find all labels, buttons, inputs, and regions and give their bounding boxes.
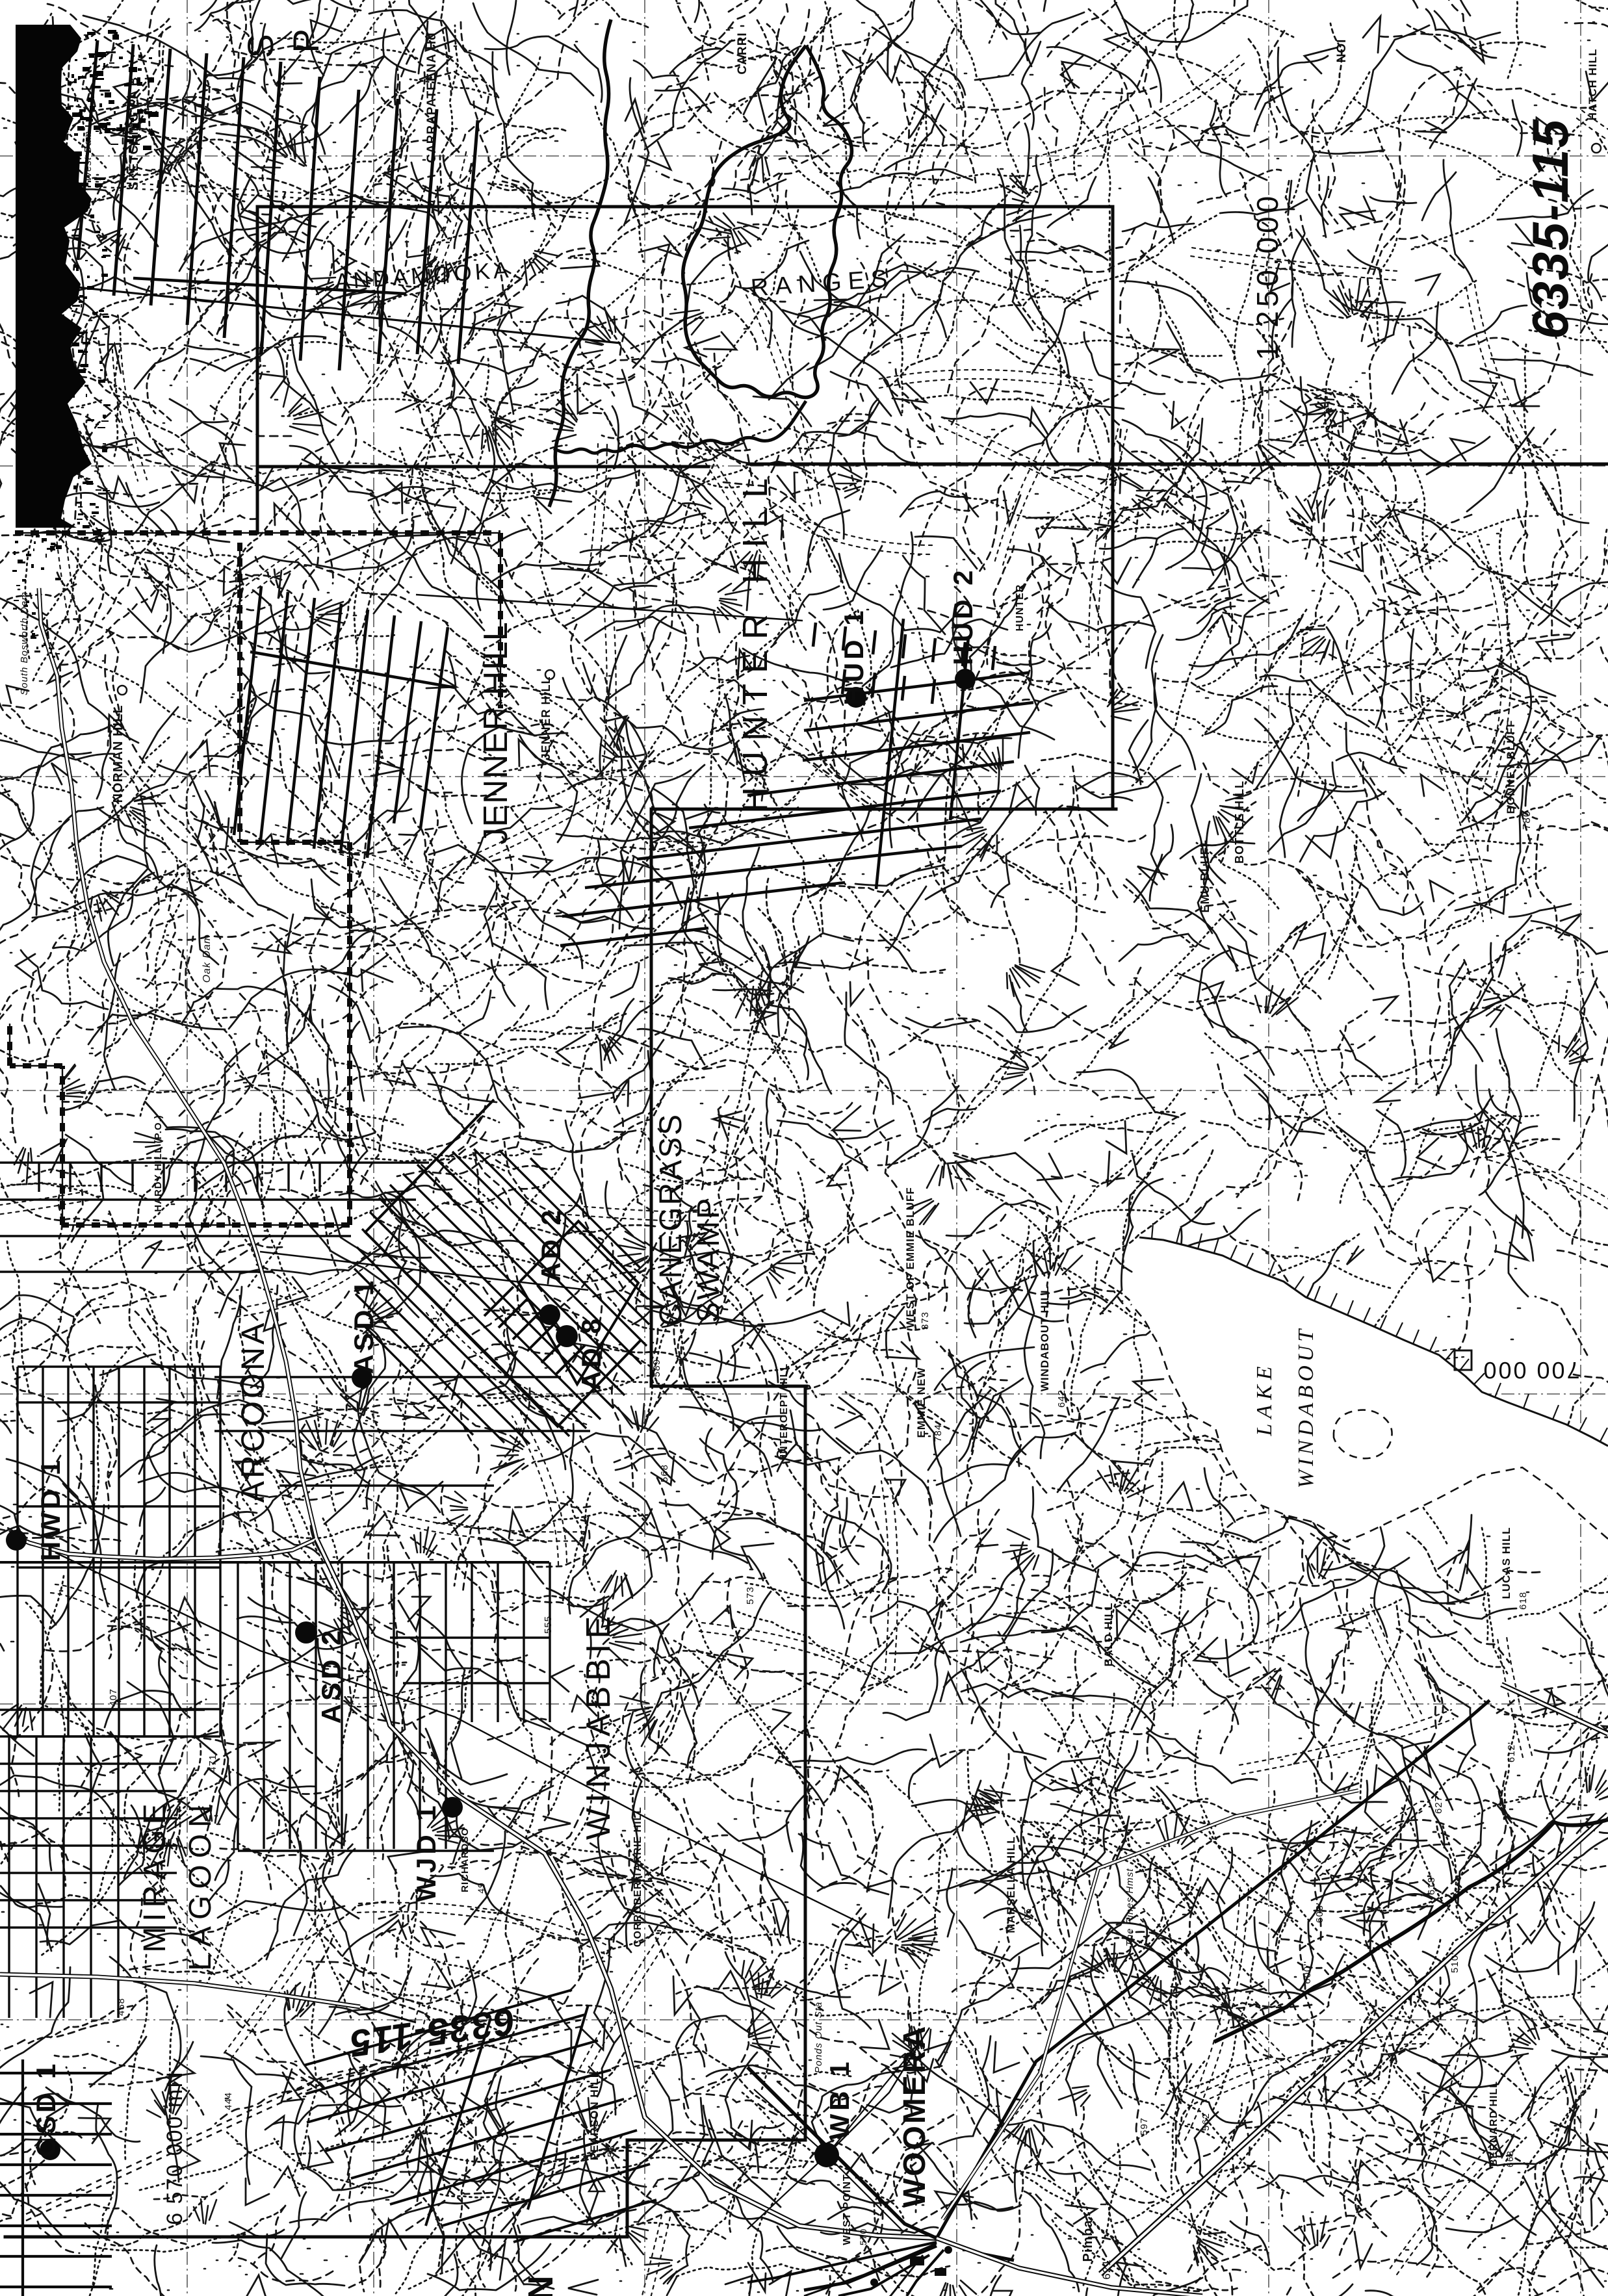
svg-text:NOI: NOI	[1335, 39, 1349, 63]
svg-text:AD 2: AD 2	[536, 1207, 566, 1282]
svg-text:555: 555	[543, 1616, 554, 1634]
svg-text:S: S	[240, 32, 281, 58]
svg-text:510': 510'	[1449, 1952, 1460, 1973]
svg-text:6 570 000 mN: 6 570 000 mN	[162, 2070, 187, 2225]
svg-text:CORROBERITARRIE HILL: CORROBERITARRIE HILL	[632, 1807, 643, 1947]
svg-text:471: 471	[207, 1754, 218, 1772]
svg-text:600'': 600''	[1302, 1961, 1313, 1984]
svg-text:BONNEY BLUFF: BONNEY BLUFF	[1505, 720, 1517, 814]
svg-text:JENNER HILL: JENNER HILL	[539, 676, 552, 760]
svg-text:LAKE: LAKE	[1252, 1361, 1277, 1436]
svg-text:WJD 1: WJD 1	[411, 1802, 441, 1902]
svg-text:WEST POINT: WEST POINT	[842, 2174, 853, 2245]
svg-text:ASD 1: ASD 1	[348, 1278, 379, 1374]
svg-text:663: 663	[1505, 2150, 1515, 2167]
svg-text:ARCOONA: ARCOONA	[235, 1321, 271, 1503]
svg-text:NORMAN HILL: NORMAN HILL	[111, 705, 125, 803]
svg-text:444: 444	[223, 2092, 234, 2110]
svg-text:53: 53	[606, 2145, 617, 2158]
svg-text:618: 618	[1518, 1592, 1529, 1610]
svg-text:1:250,000: 1:250,000	[1251, 192, 1284, 361]
svg-text:562: 562	[1200, 2113, 1212, 2131]
svg-text:HUD 2: HUD 2	[948, 567, 978, 665]
svg-text:CARRAPATEENA Hd: CARRAPATEENA Hd	[425, 32, 439, 162]
svg-text:CSD 1: CSD 1	[31, 2061, 61, 2158]
svg-text:568: 568	[659, 1464, 670, 1482]
svg-text:HUNTER HILL: HUNTER HILL	[736, 468, 775, 812]
svg-text:P: P	[285, 27, 326, 53]
svg-text:CARRI: CARRI	[736, 32, 749, 74]
svg-text:458: 458	[116, 1998, 127, 2016]
svg-text:627': 627'	[1433, 1793, 1444, 1814]
svg-text:BOTTLE HILL: BOTTLE HILL	[1233, 780, 1246, 864]
svg-text:6335-115: 6335-115	[1522, 118, 1579, 339]
svg-text:INTERCEPT HILL: INTERCEPT HILL	[779, 1363, 790, 1458]
svg-text:WINJABBIE: WINJABBIE	[580, 1611, 617, 1840]
svg-text:HUD 1: HUD 1	[838, 607, 869, 705]
svg-text:HATCH HILL: HATCH HILL	[1587, 49, 1599, 121]
svg-text:SWAMP: SWAMP	[692, 1196, 726, 1323]
svg-text:Ponds Out Sta: Ponds Out Sta	[813, 2002, 824, 2074]
svg-text:784: 784	[933, 1424, 944, 1442]
svg-text:Pimba: Pimba	[1081, 2219, 1095, 2262]
svg-text:BALD HILL: BALD HILL	[1102, 1603, 1115, 1667]
svg-text:BERNARD HILL: BERNARD HILL	[1488, 2081, 1499, 2167]
svg-text:AD 8: AD 8	[576, 1315, 606, 1391]
svg-text:CANEGRASS: CANEGRASS	[654, 1113, 688, 1326]
svg-text:HARDY HILL (P.O.): HARDY HILL (P.O.)	[153, 1115, 164, 1212]
svg-text:WINDABOUT: WINDABOUT	[1294, 1326, 1318, 1488]
svg-text:RICHARDSO: RICHARDSO	[460, 1827, 471, 1892]
svg-text:EMMIE NEW: EMMIE NEW	[915, 1367, 927, 1438]
svg-text:573: 573	[745, 1586, 756, 1605]
svg-text:621: 621	[1100, 2259, 1113, 2279]
svg-text:642: 642	[1056, 1389, 1067, 1408]
svg-text:780: 780	[1522, 810, 1533, 830]
svg-text:LAGOON: LAGOON	[183, 1798, 218, 1970]
svg-text:HWD 1: HWD 1	[35, 1457, 66, 1561]
svg-text:MARSELLA HILL: MARSELLA HILL	[1005, 1836, 1017, 1933]
svg-text:407: 407	[108, 1688, 119, 1707]
svg-text:ASD 2: ASD 2	[316, 1627, 346, 1724]
svg-text:MIRAGE: MIRAGE	[138, 1798, 172, 1952]
svg-text:HUNTER: HUNTER	[1015, 584, 1026, 632]
svg-text:618': 618'	[1426, 1874, 1437, 1895]
svg-text:WOOMERA: WOOMERA	[898, 2024, 932, 2208]
svg-text:N: N	[521, 2275, 560, 2296]
svg-text:SKETCHING PA B: SKETCHING PA B	[127, 77, 141, 190]
svg-text:373: 373	[920, 1311, 931, 1330]
svg-text:570: 570	[858, 2228, 868, 2245]
svg-text:700 000: 700 000	[1481, 1357, 1579, 1384]
svg-text:612': 612'	[1506, 1742, 1517, 1762]
svg-text:South Bosworth Dam: South Bosworth Dam	[19, 591, 30, 695]
svg-text:Oak Dam: Oak Dam	[201, 935, 213, 983]
svg-text:WINDABOUT HILL: WINDABOUT HILL	[1039, 1286, 1051, 1391]
svg-text:LUCAS HILL: LUCAS HILL	[1500, 1527, 1512, 1599]
svg-text:The Pines Hmst: The Pines Hmst	[1124, 1868, 1135, 1947]
svg-text:JENNER HILL: JENNER HILL	[477, 621, 515, 844]
svg-text:WB 1: WB 1	[824, 2059, 855, 2140]
svg-text:605: 605	[1022, 1908, 1033, 1926]
svg-text:EMU BLUFF: EMU BLUFF	[1199, 840, 1212, 913]
svg-text:597: 597	[1139, 2117, 1150, 2135]
svg-text:603': 603'	[1314, 1902, 1325, 1923]
svg-text:49: 49	[476, 1882, 486, 1894]
svg-text:589: 589	[651, 1359, 662, 1377]
svg-text:WEST OF EMMIE BLUFF: WEST OF EMMIE BLUFF	[904, 1187, 916, 1328]
svg-text:PEARSON HILL: PEARSON HILL	[588, 2070, 601, 2161]
